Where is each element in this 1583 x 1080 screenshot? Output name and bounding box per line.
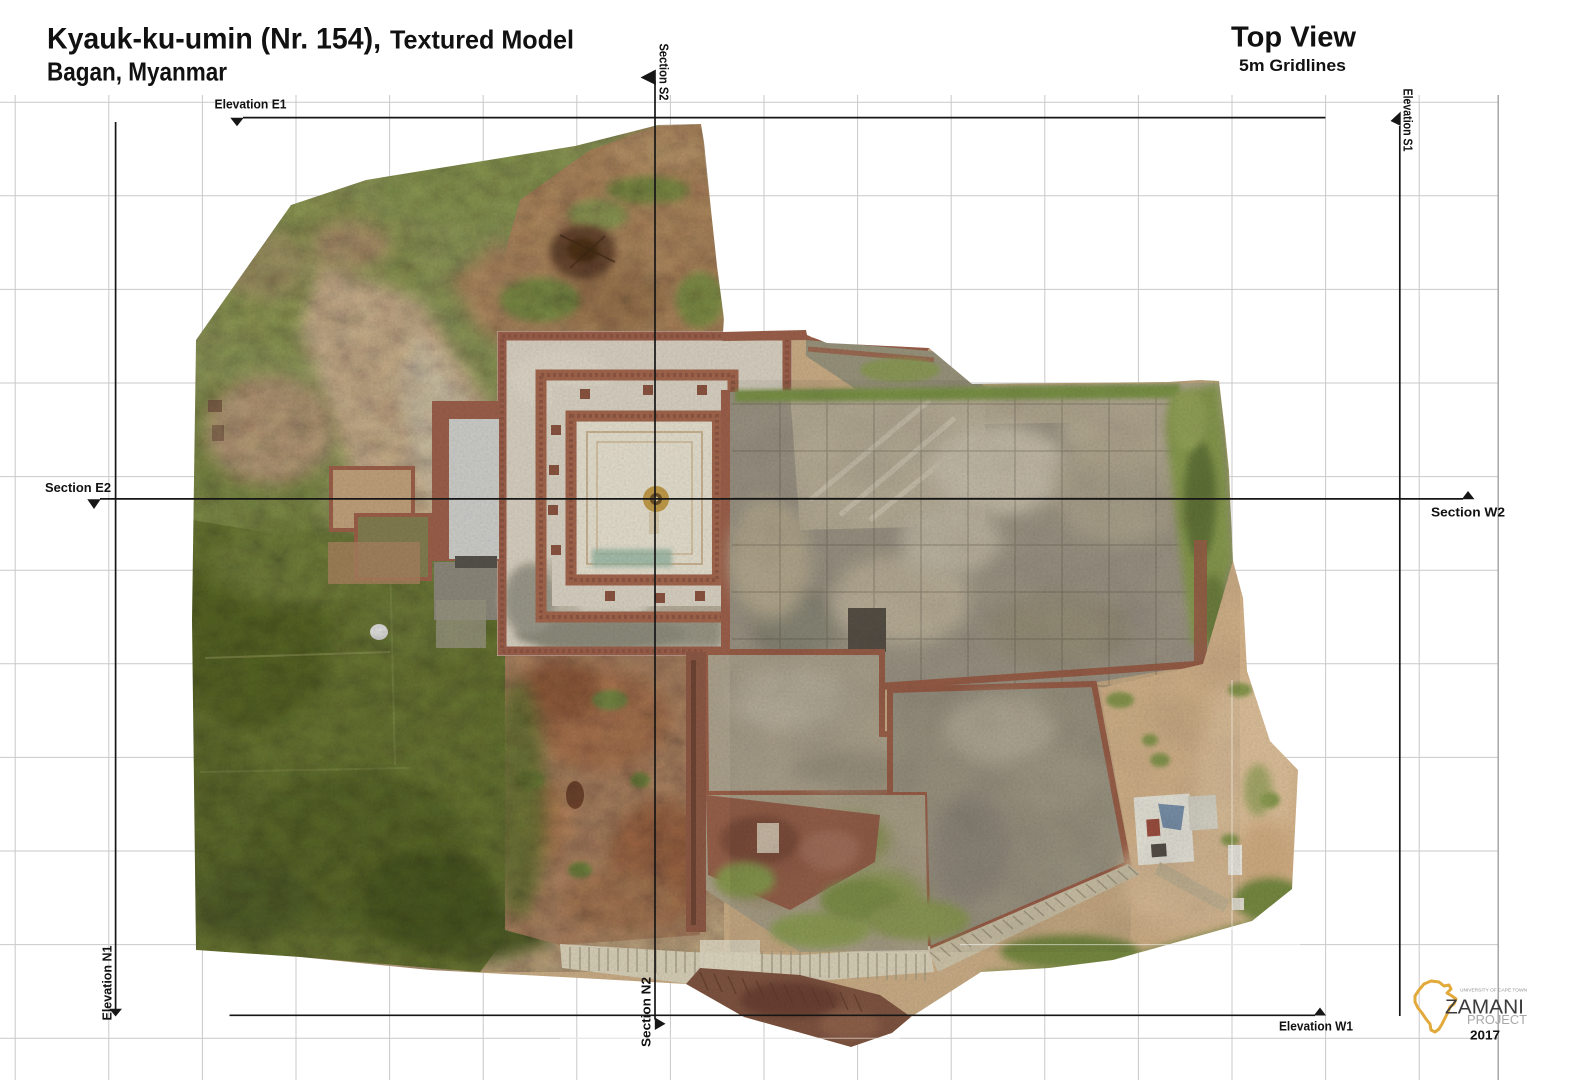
svg-text:2017: 2017 [1470,1029,1500,1043]
svg-text:Elevation W1: Elevation W1 [1279,1019,1353,1034]
svg-text:Section N2: Section N2 [639,977,654,1047]
svg-text:Elevation S1: Elevation S1 [1401,89,1416,152]
svg-text:Elevation N1: Elevation N1 [100,946,115,1021]
svg-text:Kyauk-ku-umin (Nr. 154),: Kyauk-ku-umin (Nr. 154), [47,23,381,56]
svg-text:Section W2: Section W2 [1431,505,1505,520]
svg-text:Section E2: Section E2 [45,480,111,495]
svg-text:UNIVERSITY OF CAPE TOWN: UNIVERSITY OF CAPE TOWN [1460,988,1527,993]
svg-text:Bagan, Myanmar: Bagan, Myanmar [47,57,227,87]
svg-text:Elevation E1: Elevation E1 [215,97,287,112]
svg-text:Textured Model: Textured Model [390,25,574,55]
svg-text:PROJECT: PROJECT [1467,1012,1527,1027]
svg-text:5m Gridlines: 5m Gridlines [1239,56,1346,75]
svg-text:Top View: Top View [1231,22,1356,54]
svg-text:Section S2: Section S2 [657,44,672,101]
